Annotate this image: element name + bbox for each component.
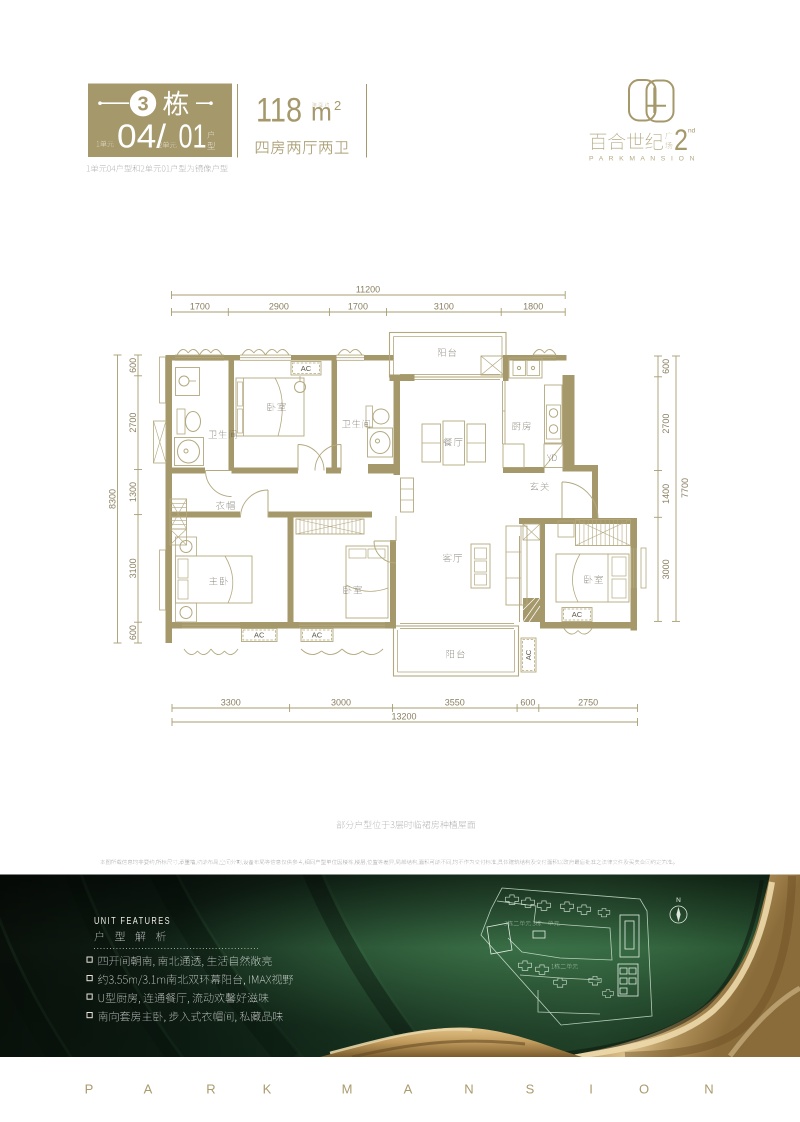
svg-text:1700: 1700	[348, 302, 368, 312]
svg-text:600: 600	[128, 625, 138, 640]
svg-text:600: 600	[520, 698, 535, 708]
svg-text:04/: 04/	[117, 118, 167, 155]
svg-text:K: K	[263, 1082, 272, 1097]
svg-text:3100: 3100	[434, 302, 454, 312]
svg-text:AC: AC	[312, 631, 323, 640]
svg-text:AC: AC	[301, 364, 312, 373]
svg-text:2: 2	[674, 124, 688, 157]
svg-text:m: m	[311, 99, 332, 127]
svg-text:O: O	[639, 1082, 649, 1097]
svg-text:M: M	[342, 1082, 353, 1097]
svg-text:N: N	[676, 897, 681, 904]
svg-text:11200: 11200	[356, 285, 380, 295]
svg-text:3: 3	[137, 94, 148, 116]
svg-text:2700: 2700	[661, 414, 671, 434]
svg-text:3100: 3100	[128, 558, 138, 578]
svg-text:2: 2	[334, 98, 341, 113]
svg-text:S: S	[526, 1082, 535, 1097]
svg-text:P A R K M A N S I O N: P A R K M A N S I O N	[589, 156, 696, 163]
svg-text:600: 600	[661, 359, 671, 374]
svg-text:AC: AC	[572, 610, 583, 619]
svg-text:N: N	[464, 1082, 473, 1097]
svg-text:01: 01	[179, 118, 207, 155]
svg-text:3000: 3000	[661, 559, 671, 579]
svg-text:AC: AC	[524, 649, 533, 660]
svg-text:R: R	[206, 1082, 215, 1097]
svg-text:1800: 1800	[523, 302, 543, 312]
svg-text:A: A	[404, 1082, 413, 1097]
svg-text:1400: 1400	[661, 484, 671, 504]
svg-text:118: 118	[256, 92, 302, 130]
svg-text:UNIT FEATURES: UNIT FEATURES	[94, 915, 171, 927]
svg-text:AC: AC	[254, 631, 265, 640]
svg-text:600: 600	[128, 358, 138, 373]
svg-text:3300: 3300	[221, 698, 241, 708]
svg-text:2900: 2900	[269, 302, 289, 312]
svg-text:2700: 2700	[128, 413, 138, 433]
svg-text:7700: 7700	[680, 478, 690, 498]
svg-text:nd: nd	[688, 128, 696, 135]
svg-text:N: N	[704, 1082, 713, 1097]
svg-text:3000: 3000	[331, 698, 351, 708]
svg-text:1700: 1700	[190, 302, 210, 312]
svg-text:I: I	[589, 1082, 593, 1097]
svg-text:8300: 8300	[108, 489, 118, 509]
svg-text:3550: 3550	[445, 698, 465, 708]
svg-text:A: A	[144, 1082, 153, 1097]
svg-text:2750: 2750	[578, 698, 598, 708]
svg-text:P: P	[85, 1082, 94, 1097]
svg-text:13200: 13200	[391, 712, 416, 722]
svg-text:1300: 1300	[128, 482, 138, 502]
